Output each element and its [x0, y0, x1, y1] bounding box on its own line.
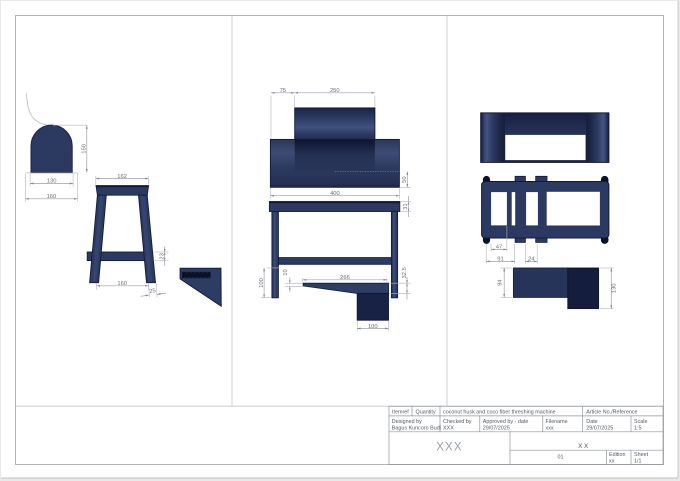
svg-text:XXX: XXX	[443, 425, 454, 431]
svg-text:Date: Date	[586, 419, 597, 425]
svg-text:01: 01	[558, 455, 564, 461]
svg-text:Bagus Kuncoro Budi: Bagus Kuncoro Budi	[392, 425, 441, 431]
svg-text:Quantity: Quantity	[416, 409, 436, 415]
svg-text:160: 160	[117, 281, 127, 287]
svg-text:Edition: Edition	[609, 452, 625, 458]
svg-text:XX: XX	[578, 443, 590, 450]
svg-text:400: 400	[330, 191, 340, 197]
svg-text:coconut husk and coco fiber th: coconut husk and coco fiber threshing ma…	[443, 409, 556, 415]
svg-text:Designed by: Designed by	[392, 419, 422, 425]
svg-text:162: 162	[117, 174, 127, 180]
svg-text:266: 266	[340, 275, 350, 281]
svg-text:32.5: 32.5	[402, 267, 408, 278]
svg-text:50: 50	[402, 176, 408, 182]
svg-text:130: 130	[47, 179, 57, 185]
svg-text:29/07/2025: 29/07/2025	[483, 425, 510, 431]
svg-text:100: 100	[259, 278, 265, 288]
svg-text:xx: xx	[609, 459, 615, 465]
svg-text:10: 10	[283, 269, 289, 275]
svg-text:47: 47	[496, 245, 502, 251]
svg-text:Approved by - date: Approved by - date	[483, 419, 529, 425]
svg-text:130: 130	[612, 283, 618, 293]
svg-text:25: 25	[149, 288, 156, 295]
svg-text:XXX: XXX	[436, 441, 463, 453]
svg-text:xxx: xxx	[546, 425, 554, 431]
svg-text:Article No./Reference: Article No./Reference	[586, 409, 637, 415]
svg-text:100: 100	[368, 324, 378, 330]
svg-text:24: 24	[528, 257, 535, 263]
svg-text:75: 75	[280, 88, 286, 94]
svg-text:94: 94	[497, 279, 503, 286]
svg-text:29/07/2025: 29/07/2025	[586, 425, 613, 431]
svg-text:250: 250	[330, 88, 340, 94]
svg-text:Scale: Scale	[634, 419, 648, 425]
svg-text:Filename: Filename	[546, 419, 568, 425]
svg-text:23: 23	[159, 253, 165, 259]
svg-text:160: 160	[47, 194, 57, 200]
svg-text:150: 150	[81, 144, 87, 154]
svg-text:Checked by: Checked by	[443, 419, 472, 425]
svg-text:1/1: 1/1	[634, 459, 642, 465]
svg-text:1:5: 1:5	[634, 425, 642, 431]
svg-text:Sheet: Sheet	[634, 452, 649, 458]
svg-text:91: 91	[497, 257, 503, 263]
svg-text:Itemref: Itemref	[392, 409, 409, 415]
svg-text:31: 31	[403, 203, 409, 209]
